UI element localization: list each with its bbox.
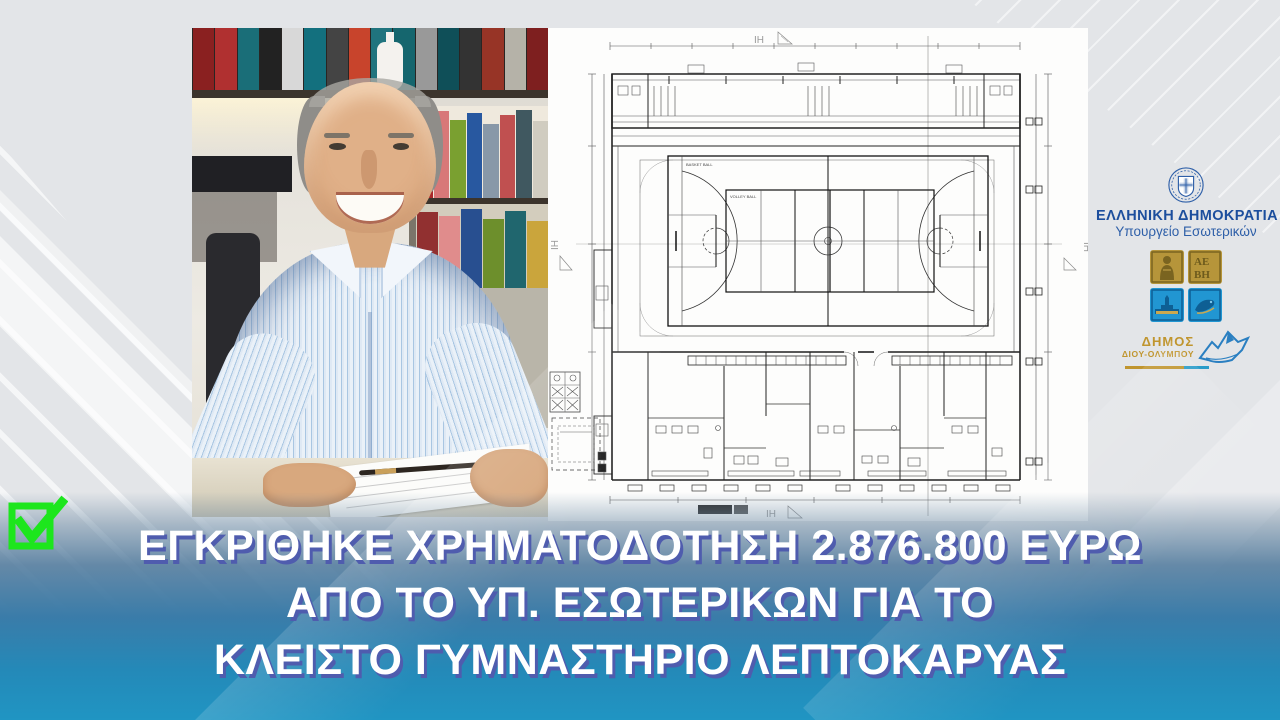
seal-tile-castle-icon	[1150, 288, 1184, 322]
plan-marker-left: ΙΗ	[550, 240, 561, 250]
seal-tile-figure-icon	[1150, 250, 1184, 284]
seal-tile-fossil-icon	[1188, 288, 1222, 322]
mayor-eyebrow-left	[324, 133, 351, 138]
ministry-logo-block: ΕΛΛΗΝΙΚΗ ΔΗΜΟΚΡΑΤΙΑ Υπουργείο Εσωτερικών	[1096, 166, 1276, 239]
banner-line-3: ΚΛΕΙΣΤΟ ΓΥΜΝΑΣΤΗΡΙΟ ΛΕΠΤΟΚΑΡΥΑΣ	[214, 632, 1066, 689]
hellenic-republic-emblem-icon	[1167, 166, 1205, 204]
municipality-name: ΔΗΜΟΣ	[1122, 334, 1194, 349]
municipality-logo-block: ΑΕ ΒΗ ΔΗ	[1096, 250, 1276, 369]
ministry-name: ΕΛΛΗΝΙΚΗ ΔΗΜΟΚΡΑΤΙΑ	[1096, 208, 1276, 224]
banner-line-2: ΑΠΟ ΤΟ ΥΠ. ΕΣΩΤΕΡΙΚΩΝ ΓΙΑ ΤΟ	[286, 575, 994, 632]
checkbox-checked-icon	[6, 494, 68, 558]
announcement-banner: ΕΓΚΡΙΘΗΚΕ ΧΡΗΜΑΤΟΔΟΤΗΣΗ 2.876.800 ΕΥΡΩ Α…	[0, 492, 1280, 720]
banner-line-1: ΕΓΚΡΙΘΗΚΕ ΧΡΗΜΑΤΟΔΟΤΗΣΗ 2.876.800 ΕΥΡΩ	[138, 518, 1142, 575]
black-counter	[192, 156, 292, 192]
plan-marker-right: ΙΗ	[1081, 242, 1088, 252]
svg-text:ΑΕ: ΑΕ	[1194, 256, 1209, 268]
announcement-graphic: ΙΗ ΙΗ ΙΗ ΙΗ BASKET BALL VOLLEY BALL	[0, 0, 1280, 720]
seal-tile-letters-icon: ΑΕ ΒΗ	[1188, 250, 1222, 284]
basketball-court-label: BASKET BALL	[686, 162, 713, 167]
olympus-mountain-icon	[1198, 328, 1250, 364]
banner-text-block: ΕΓΚΡΙΘΗΚΕ ΧΡΗΜΑΤΟΔΟΤΗΣΗ 2.876.800 ΕΥΡΩ Α…	[0, 518, 1280, 689]
plan-marker-top: ΙΗ	[754, 35, 764, 46]
municipality-seal-icon: ΑΕ ΒΗ	[1150, 250, 1222, 322]
ministry-department: Υπουργείο Εσωτερικών	[1096, 224, 1276, 239]
svg-text:ΒΗ: ΒΗ	[1194, 269, 1210, 281]
volleyball-court-label: VOLLEY BALL	[730, 194, 757, 199]
mayor-eyebrow-right	[388, 133, 415, 138]
